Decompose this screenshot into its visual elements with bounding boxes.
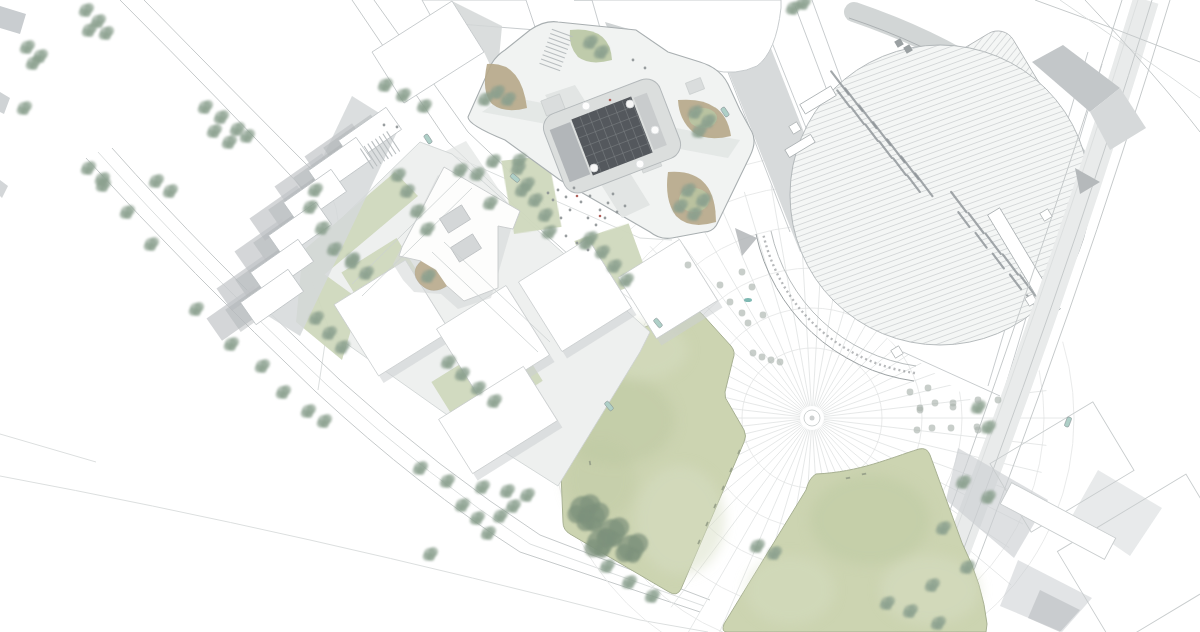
tree-icon — [144, 237, 160, 251]
site-plan-screenshot — [0, 0, 1200, 632]
person-dot — [604, 217, 607, 220]
tree-icon — [163, 184, 179, 198]
person-dot — [587, 249, 590, 252]
person-dot — [576, 242, 579, 245]
site-plan-canvas — [0, 0, 1200, 632]
tree-dot-icon — [750, 350, 757, 357]
tree-dot-icon — [777, 359, 784, 366]
tree-dot-icon — [995, 397, 1002, 404]
tree-icon — [207, 124, 223, 138]
tree-icon — [455, 498, 471, 512]
tree-icon — [120, 205, 136, 219]
tree-icon — [79, 3, 95, 17]
tree-dot-icon — [768, 357, 775, 364]
tree-icon — [506, 499, 522, 513]
person-dot — [612, 193, 615, 196]
access-road-tip — [735, 228, 757, 256]
tree-dot-icon — [717, 282, 724, 289]
tree-dot-icon — [907, 389, 914, 396]
tree-dot-icon — [685, 262, 692, 269]
tree-icon — [99, 26, 115, 40]
edge-fragment — [0, 180, 8, 198]
person-dot — [587, 217, 590, 220]
boulevard-northwest-line — [144, 0, 322, 180]
person-dot — [396, 126, 399, 129]
person-dot — [599, 209, 602, 212]
car-icon — [423, 134, 432, 145]
person-dot — [565, 235, 568, 238]
tree-dot-icon — [975, 427, 982, 434]
edge-fragment — [0, 6, 26, 34]
tree-icon — [440, 474, 456, 488]
tree-dot-icon — [727, 299, 734, 306]
tree-icon — [81, 161, 97, 175]
person-dot — [624, 205, 627, 208]
tree-icon — [222, 135, 238, 149]
tree-icon — [417, 99, 433, 113]
tree-icon — [486, 154, 502, 168]
tree-dot-icon — [739, 310, 746, 317]
faint-rail-line — [0, 434, 96, 462]
edge-building-fragments — [0, 6, 26, 198]
person-dot — [560, 217, 563, 220]
person-dot — [607, 202, 610, 205]
person-dot — [557, 189, 560, 192]
tree-icon — [20, 40, 36, 54]
tree-icon — [276, 385, 292, 399]
tree-icon — [470, 511, 486, 525]
tree-icon — [149, 174, 165, 188]
person-dot — [580, 201, 583, 204]
tree-icon — [301, 404, 317, 418]
tree-icon — [378, 78, 394, 92]
person-dot — [632, 59, 635, 62]
tree-dot-icon — [739, 269, 746, 276]
tree-icon — [475, 480, 491, 494]
person-dot — [565, 196, 568, 199]
tree-dot-icon — [932, 400, 939, 407]
person-dot — [644, 67, 647, 70]
tree-icon — [26, 56, 42, 70]
tree-icon — [214, 110, 230, 124]
tree-icon — [255, 359, 271, 373]
tree-icon — [493, 509, 509, 523]
person-dot — [547, 192, 550, 195]
person-dot-red — [609, 99, 612, 102]
teal-object — [744, 298, 752, 302]
tree-icon — [317, 414, 333, 428]
tree-icon — [82, 23, 98, 37]
person-dot — [552, 199, 555, 202]
tree-icon — [224, 337, 240, 351]
tree-icon — [17, 101, 33, 115]
boulevard-northwest-line — [120, 0, 306, 192]
tree-dot-icon — [950, 400, 957, 407]
tree-dot-icon — [929, 425, 936, 432]
person-dot-red — [599, 215, 602, 218]
tree-icon — [189, 302, 205, 316]
person-dot — [616, 211, 619, 214]
tree-icon — [413, 461, 429, 475]
person-dot — [383, 124, 386, 127]
person-dot — [569, 209, 572, 212]
tree-dot-icon — [917, 407, 924, 414]
tree-icon — [481, 526, 497, 540]
tree-dot-icon — [760, 312, 767, 319]
person-dot — [573, 187, 576, 190]
tree-dot-icon — [745, 320, 752, 327]
tree-icon — [750, 539, 766, 553]
person-dot — [589, 195, 592, 198]
tree-dot-icon — [948, 425, 955, 432]
tree-icon — [520, 488, 536, 502]
tree-icon — [500, 484, 516, 498]
tree-icon — [645, 589, 661, 603]
tree-dot-icon — [749, 284, 756, 291]
person-dot-red — [576, 195, 579, 198]
tree-icon — [198, 100, 214, 114]
tree-dot-icon — [914, 427, 921, 434]
tree-icon — [600, 559, 616, 573]
person-dot — [595, 224, 598, 227]
tree-dot-icon — [759, 354, 766, 361]
tree-icon — [423, 547, 439, 561]
tree-dot-icon — [975, 397, 982, 404]
edge-fragment — [0, 92, 10, 114]
tree-dot-icon — [925, 385, 932, 392]
